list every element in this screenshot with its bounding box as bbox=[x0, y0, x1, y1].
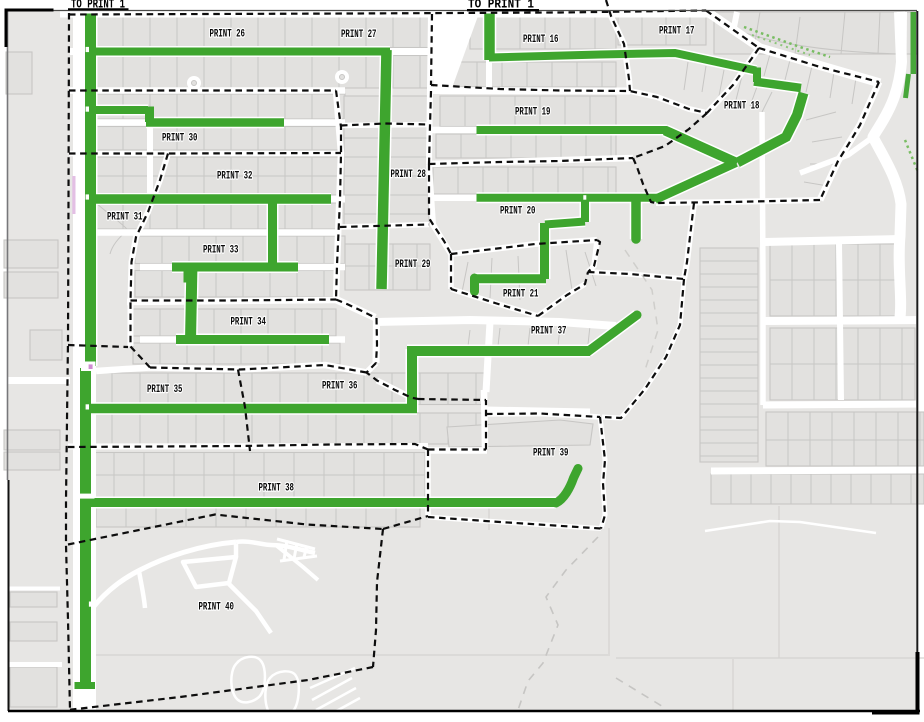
svg-text:PRINT 34: PRINT 34 bbox=[231, 317, 267, 329]
svg-text:PRINT 36: PRINT 36 bbox=[322, 381, 358, 393]
svg-text:PRINT 31: PRINT 31 bbox=[107, 212, 143, 224]
svg-text:PRINT 18: PRINT 18 bbox=[724, 101, 760, 113]
svg-text:PRINT 16: PRINT 16 bbox=[523, 34, 559, 46]
svg-text:PRINT 30: PRINT 30 bbox=[162, 133, 198, 145]
svg-text:PRINT 29: PRINT 29 bbox=[395, 259, 431, 271]
svg-text:PRINT 39: PRINT 39 bbox=[533, 448, 569, 460]
svg-text:PRINT 40: PRINT 40 bbox=[199, 602, 235, 614]
svg-text:PRINT 19: PRINT 19 bbox=[515, 107, 551, 119]
svg-text:PRINT 35: PRINT 35 bbox=[147, 384, 183, 396]
svg-text:PRINT 21: PRINT 21 bbox=[503, 289, 539, 301]
svg-text:PRINT 26: PRINT 26 bbox=[210, 29, 246, 41]
svg-text:PRINT 32: PRINT 32 bbox=[217, 171, 253, 183]
svg-text:PRINT 20: PRINT 20 bbox=[500, 206, 536, 218]
svg-text:PRINT 38: PRINT 38 bbox=[259, 483, 295, 495]
svg-text:PRINT 27: PRINT 27 bbox=[341, 29, 377, 41]
svg-text:PRINT 17: PRINT 17 bbox=[659, 26, 695, 38]
svg-text:PRINT 28: PRINT 28 bbox=[391, 169, 427, 181]
svg-text:PRINT 37: PRINT 37 bbox=[531, 326, 567, 338]
svg-text:PRINT 33: PRINT 33 bbox=[203, 245, 239, 257]
